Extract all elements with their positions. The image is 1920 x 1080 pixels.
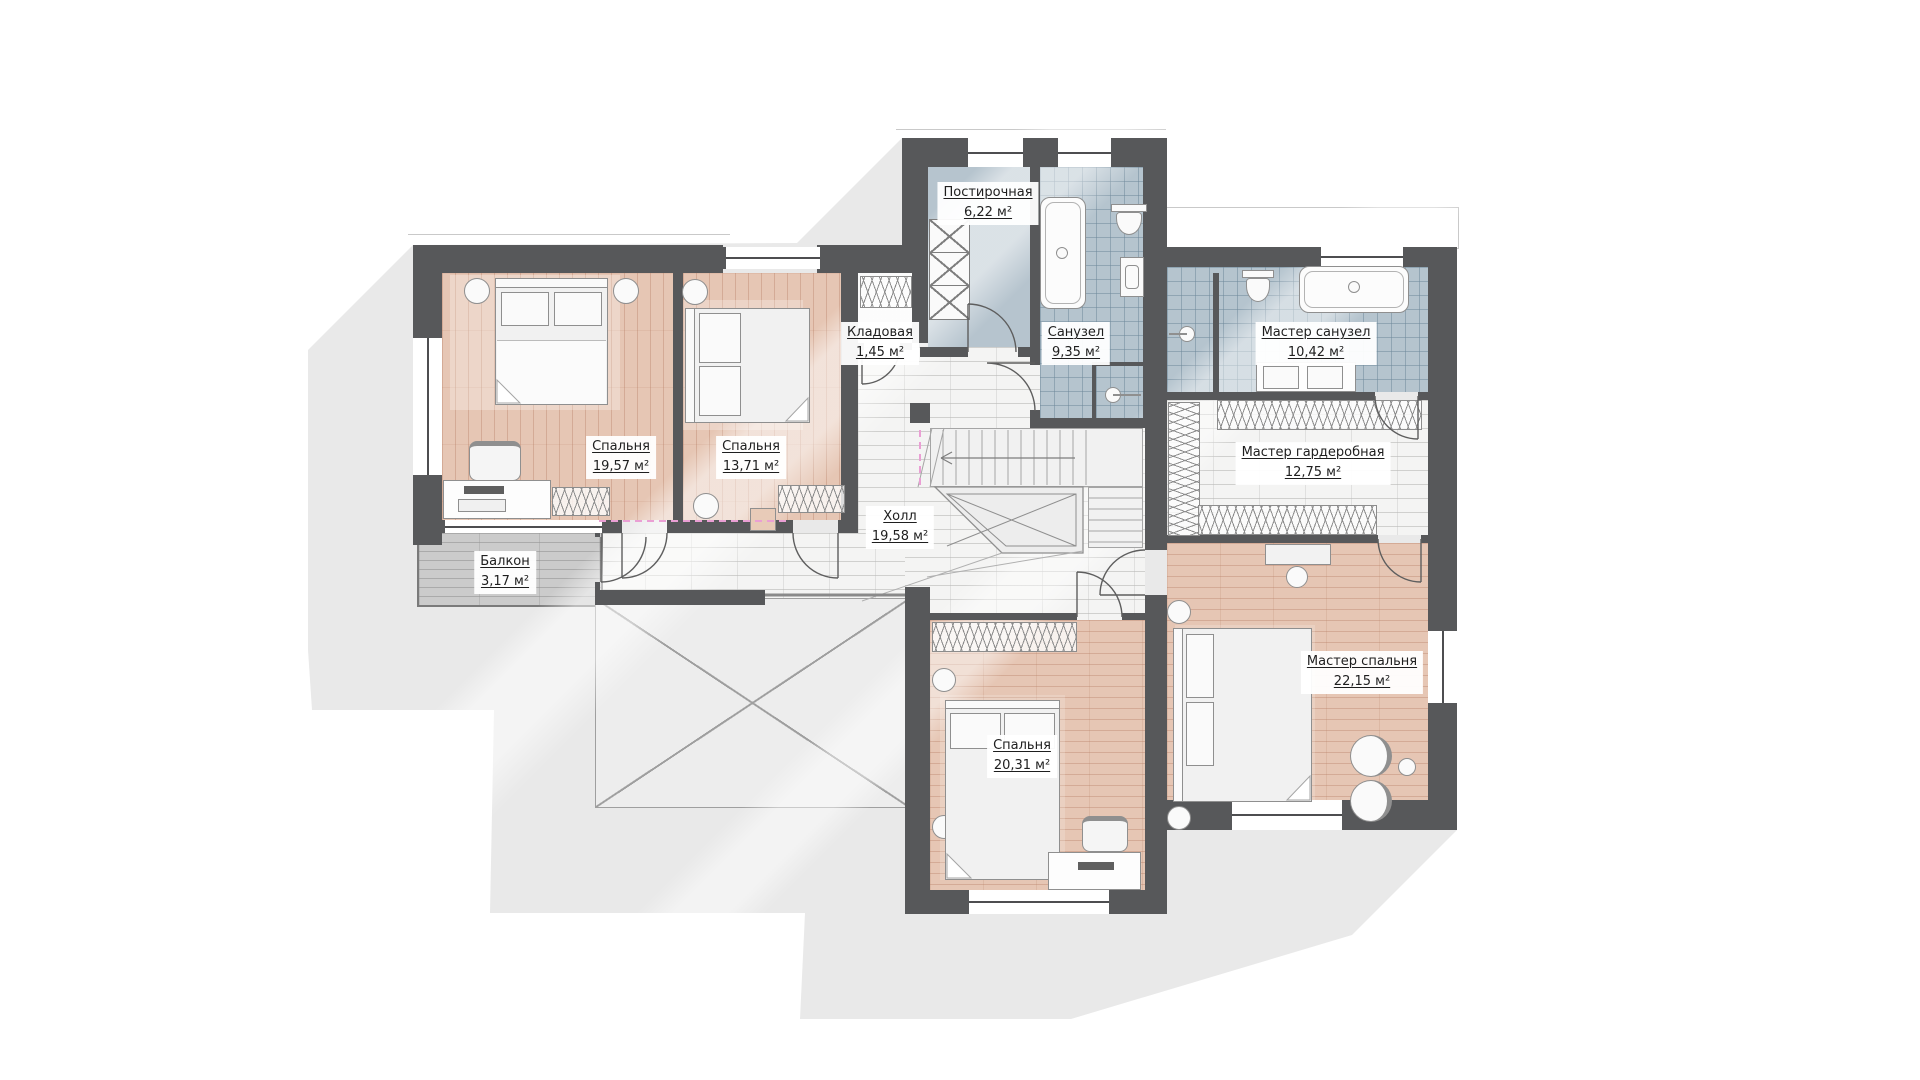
room-area: 19,58 м² bbox=[872, 527, 928, 547]
room-area: 1,45 м² bbox=[847, 343, 913, 363]
plan-linework bbox=[0, 0, 1920, 1080]
room-name: Холл bbox=[872, 507, 928, 527]
floor-plan-canvas: Постирочная 6,22 м² Кладовая 1,45 м² Сан… bbox=[0, 0, 1920, 1080]
room-area: 19,57 м² bbox=[592, 457, 650, 477]
room-area: 22,15 м² bbox=[1307, 672, 1417, 692]
room-area: 9,35 м² bbox=[1048, 343, 1104, 363]
room-name: Мастер спальня bbox=[1307, 652, 1417, 672]
room-name: Мастер санузел bbox=[1262, 323, 1371, 343]
room-label-bathroom: Санузел 9,35 м² bbox=[1042, 322, 1110, 365]
room-label-master-bedroom: Мастер спальня 22,15 м² bbox=[1301, 651, 1423, 694]
room-name: Мастер гардеробная bbox=[1242, 443, 1385, 463]
room-name: Балкон bbox=[480, 552, 530, 572]
room-label-hall: Холл 19,58 м² bbox=[866, 506, 934, 549]
room-label-bedroom-2: Спальня 13,71 м² bbox=[716, 436, 786, 479]
room-name: Постирочная bbox=[943, 183, 1032, 203]
room-area: 6,22 м² bbox=[943, 203, 1032, 223]
room-name: Спальня bbox=[592, 437, 650, 457]
room-label-master-wardrobe: Мастер гардеробная 12,75 м² bbox=[1236, 442, 1391, 485]
room-name: Спальня bbox=[993, 736, 1051, 756]
room-label-bedroom-1: Спальня 19,57 м² bbox=[586, 436, 656, 479]
room-label-balcony: Балкон 3,17 м² bbox=[474, 551, 536, 594]
room-name: Спальня bbox=[722, 437, 780, 457]
room-label-laundry: Постирочная 6,22 м² bbox=[937, 182, 1038, 225]
room-label-bedroom-3: Спальня 20,31 м² bbox=[987, 735, 1057, 778]
room-name: Санузел bbox=[1048, 323, 1104, 343]
room-area: 3,17 м² bbox=[480, 572, 530, 592]
room-area: 10,42 м² bbox=[1262, 343, 1371, 363]
room-area: 13,71 м² bbox=[722, 457, 780, 477]
room-label-storage: Кладовая 1,45 м² bbox=[841, 322, 919, 365]
room-area: 20,31 м² bbox=[993, 756, 1051, 776]
room-label-master-bathroom: Мастер санузел 10,42 м² bbox=[1256, 322, 1377, 365]
room-area: 12,75 м² bbox=[1242, 463, 1385, 483]
room-name: Кладовая bbox=[847, 323, 913, 343]
